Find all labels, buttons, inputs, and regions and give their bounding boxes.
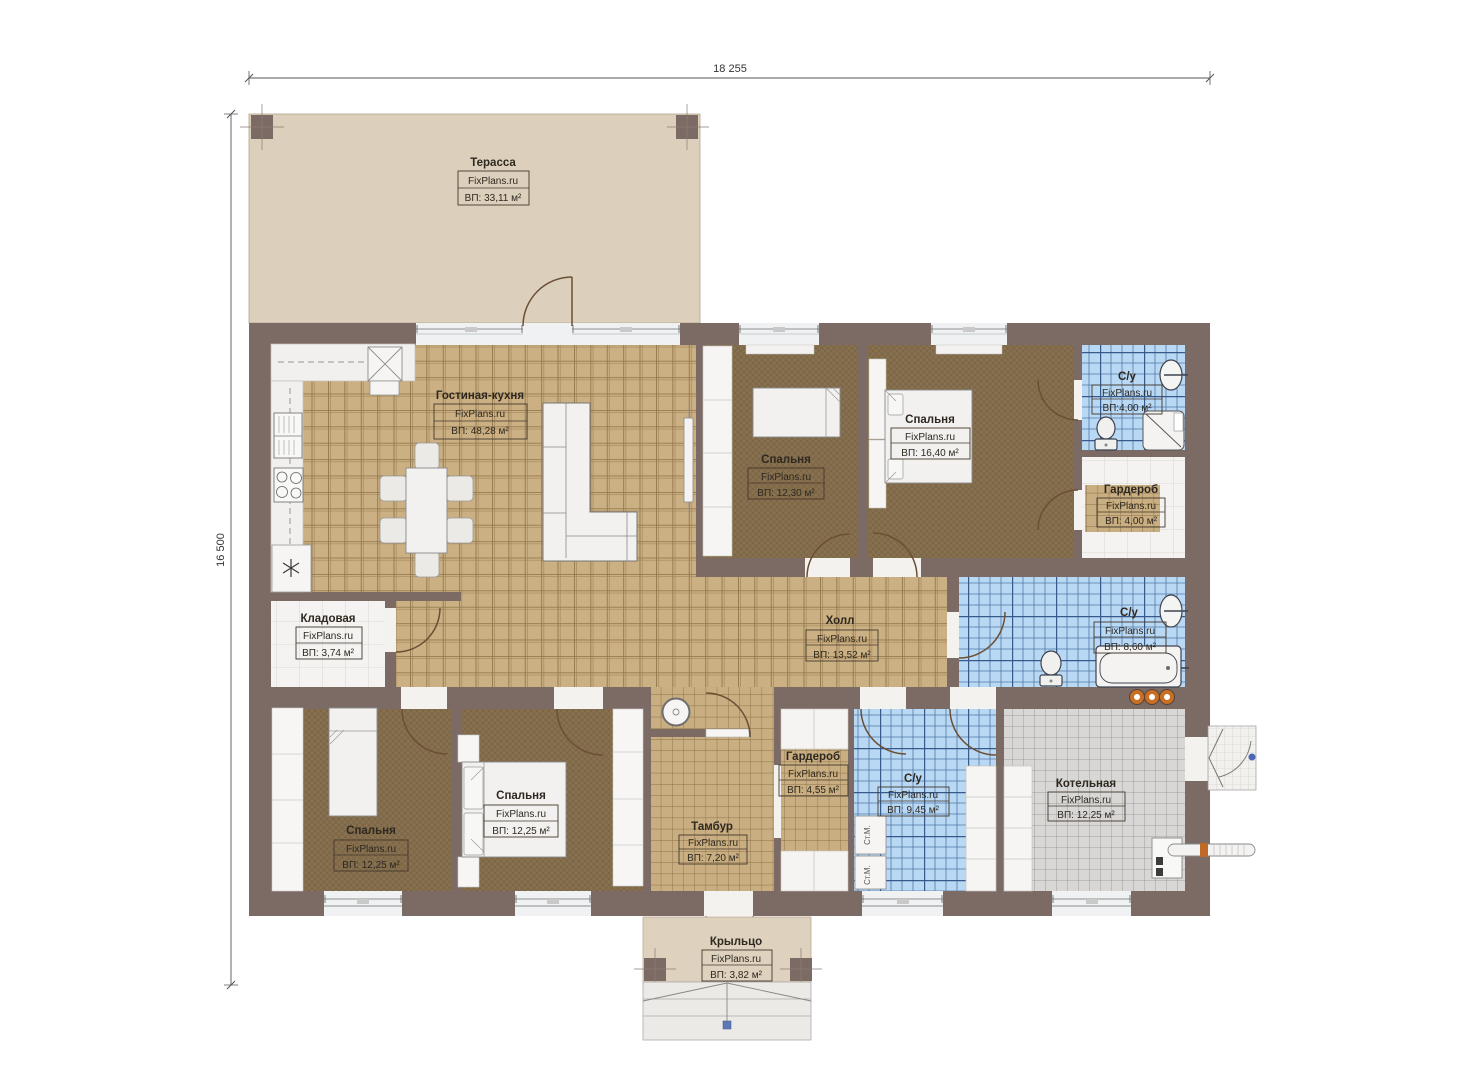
svg-text:Спальня: Спальня — [905, 414, 955, 426]
svg-text:Ст.М.: Ст.М. — [863, 825, 872, 845]
svg-text:Ст.М.: Ст.М. — [863, 865, 872, 885]
svg-text:ВП: 12,25 м²: ВП: 12,25 м² — [342, 860, 400, 871]
svg-text:FixPlans.ru: FixPlans.ru — [761, 472, 811, 483]
svg-text:FixPlans.ru: FixPlans.ru — [303, 631, 353, 642]
svg-text:Спальня: Спальня — [761, 454, 811, 466]
svg-text:FixPlans.ru: FixPlans.ru — [905, 432, 955, 443]
svg-text:Гардероб: Гардероб — [786, 751, 840, 763]
svg-text:С/у: С/у — [904, 773, 923, 785]
svg-text:FixPlans.ru: FixPlans.ru — [1102, 388, 1152, 399]
svg-text:FixPlans.ru: FixPlans.ru — [817, 634, 867, 645]
svg-text:18 255: 18 255 — [713, 63, 747, 75]
svg-text:С/у: С/у — [1120, 607, 1139, 619]
svg-text:Спальня: Спальня — [346, 825, 396, 837]
svg-text:FixPlans.ru: FixPlans.ru — [788, 769, 838, 780]
svg-text:ВП: 8,60 м²: ВП: 8,60 м² — [1104, 642, 1157, 653]
svg-text:ВП: 4,55 м²: ВП: 4,55 м² — [787, 785, 840, 796]
svg-text:С/у: С/у — [1118, 371, 1137, 383]
svg-text:FixPlans.ru: FixPlans.ru — [455, 409, 505, 420]
svg-text:Гардероб: Гардероб — [1104, 484, 1158, 496]
svg-text:FixPlans.ru: FixPlans.ru — [1061, 795, 1111, 806]
svg-text:FixPlans.ru: FixPlans.ru — [1106, 501, 1156, 512]
svg-text:ВП: 12,25 м²: ВП: 12,25 м² — [1057, 810, 1115, 821]
svg-text:Терасса: Терасса — [470, 157, 516, 169]
svg-text:ВП: 9,45 м²: ВП: 9,45 м² — [887, 805, 940, 816]
svg-text:ВП: 13,52 м²: ВП: 13,52 м² — [813, 650, 871, 661]
svg-text:ВП: 12,30 м²: ВП: 12,30 м² — [757, 488, 815, 499]
svg-text:Тамбур: Тамбур — [691, 821, 733, 833]
svg-text:ВП: 4,00 м²: ВП: 4,00 м² — [1105, 516, 1158, 527]
svg-text:FixPlans.ru: FixPlans.ru — [711, 954, 761, 965]
svg-text:Крыльцо: Крыльцо — [710, 936, 762, 948]
svg-text:ВП: 3,82 м²: ВП: 3,82 м² — [710, 970, 763, 981]
svg-text:ВП: 16,40 м²: ВП: 16,40 м² — [901, 448, 959, 459]
svg-text:ВП: 7,20 м²: ВП: 7,20 м² — [687, 853, 740, 864]
svg-text:16 500: 16 500 — [215, 533, 227, 567]
svg-text:ВП: 33,11 м²: ВП: 33,11 м² — [465, 193, 522, 204]
svg-text:ВП:4,00 м²: ВП:4,00 м² — [1102, 403, 1152, 414]
svg-text:Спальня: Спальня — [496, 790, 546, 802]
svg-text:Гостиная-кухня: Гостиная-кухня — [436, 390, 524, 402]
svg-text:FixPlans.ru: FixPlans.ru — [346, 844, 396, 855]
svg-text:FixPlans.ru: FixPlans.ru — [688, 838, 738, 849]
svg-text:FixPlans.ru: FixPlans.ru — [1105, 626, 1155, 637]
svg-text:ВП: 12,25 м²: ВП: 12,25 м² — [492, 826, 550, 837]
svg-text:FixPlans.ru: FixPlans.ru — [888, 790, 938, 801]
svg-text:ВП: 3,74 м²: ВП: 3,74 м² — [302, 648, 355, 659]
svg-text:ВП: 48,28 м²: ВП: 48,28 м² — [451, 426, 509, 437]
svg-text:FixPlans.ru: FixPlans.ru — [468, 176, 518, 187]
svg-text:Кладовая: Кладовая — [300, 613, 355, 625]
svg-text:Холл: Холл — [826, 615, 855, 627]
svg-text:FixPlans.ru: FixPlans.ru — [496, 809, 546, 820]
svg-text:Котельная: Котельная — [1056, 778, 1116, 790]
